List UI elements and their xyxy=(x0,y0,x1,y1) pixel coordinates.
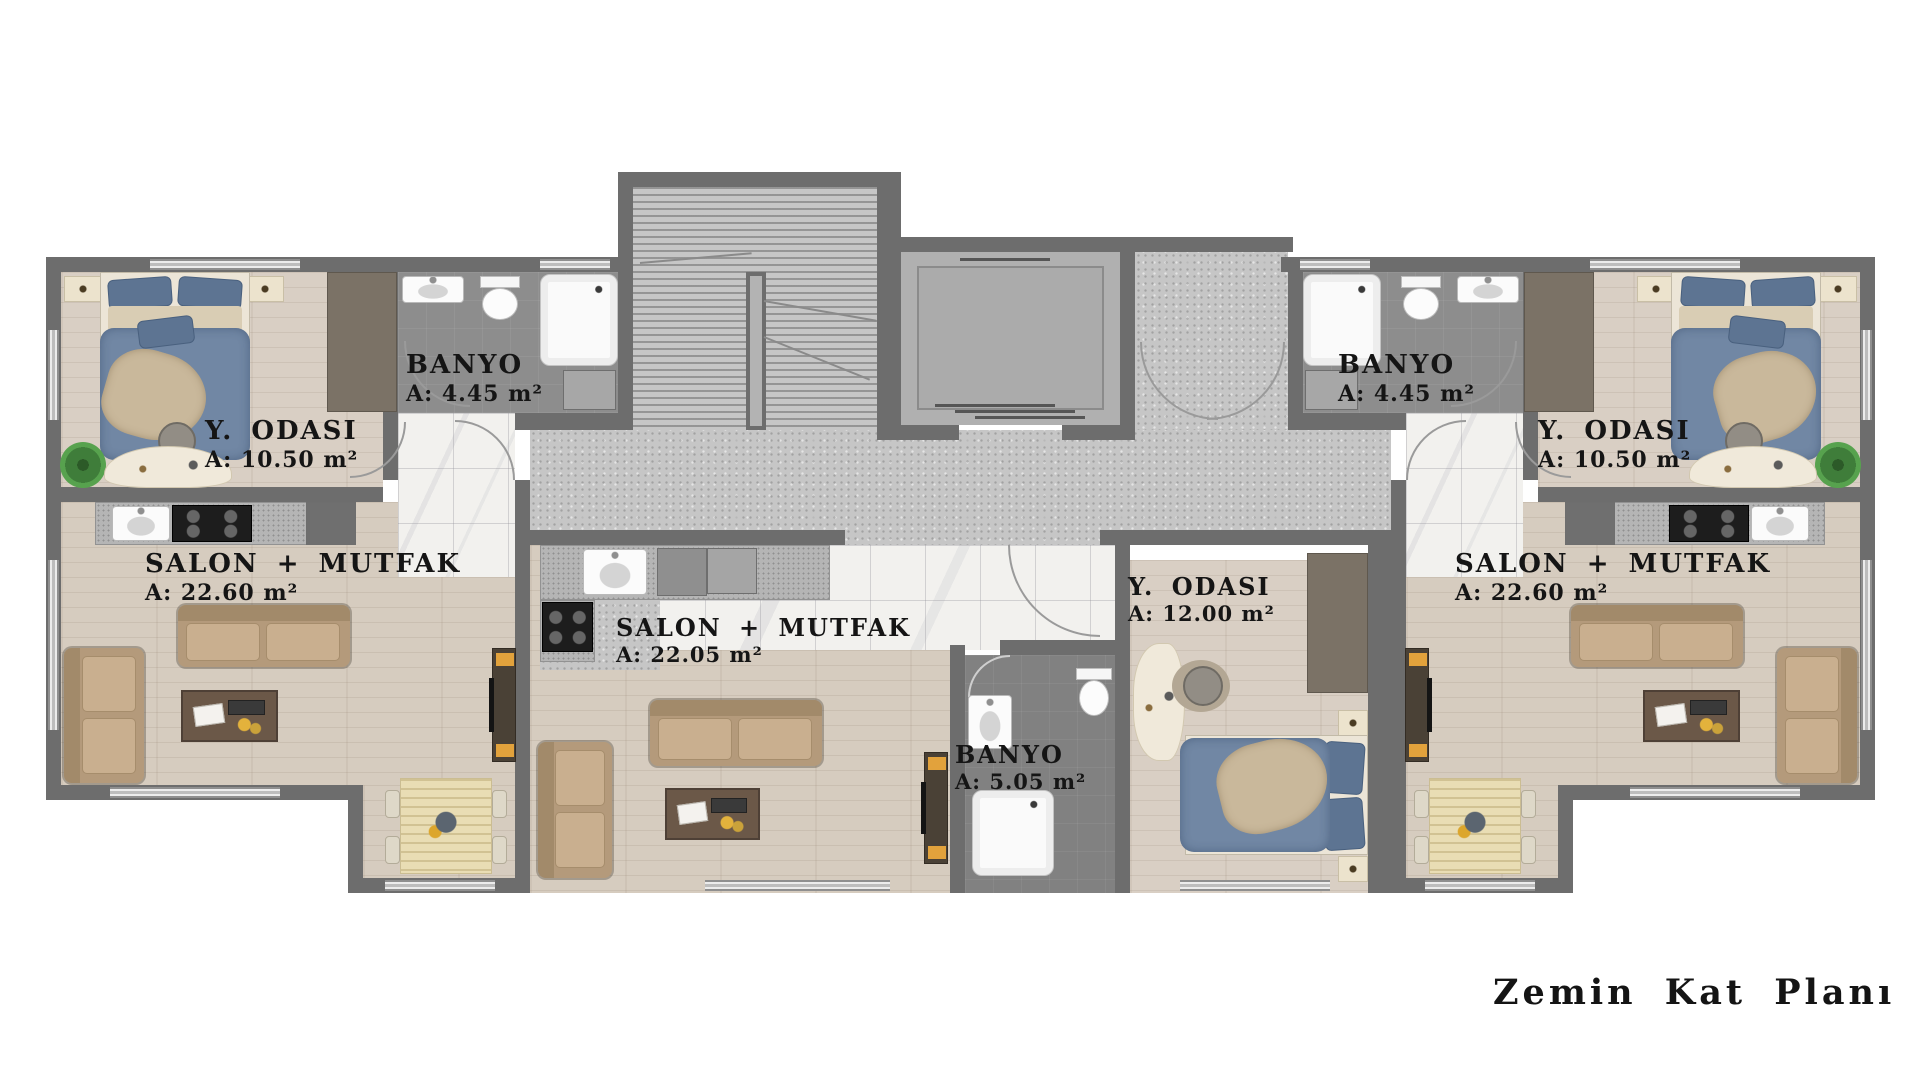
elevator-door-line xyxy=(955,410,1075,413)
window xyxy=(385,880,495,891)
toilet-tank xyxy=(1076,668,1112,680)
wall-stair-tower xyxy=(618,172,901,187)
wardrobe xyxy=(1524,272,1594,412)
armchair-cushion xyxy=(1785,656,1839,712)
elevator-mech-line xyxy=(960,258,1050,261)
tv-screen xyxy=(1427,678,1432,732)
wall xyxy=(1558,785,1573,893)
dining-chair xyxy=(385,790,400,818)
room-label-left-salon: SALON + MUTFAK A: 22.60 m² xyxy=(145,551,461,605)
wall xyxy=(1368,545,1406,893)
room-label-middle-salon: SALON + MUTFAK A: 22.05 m² xyxy=(616,615,911,666)
window xyxy=(1861,330,1872,420)
coffee-table-tray xyxy=(1690,700,1727,715)
plant xyxy=(1815,442,1861,488)
coffee-table-tray xyxy=(711,798,748,813)
sofa-back xyxy=(1571,605,1743,621)
wall-elevator xyxy=(901,425,959,440)
elevator-cab-inner xyxy=(917,266,1104,410)
room-area: A: 12.00 m² xyxy=(1128,603,1275,625)
refrigerator xyxy=(707,548,757,594)
nightstand xyxy=(246,276,284,302)
room-area: A: 10.50 m² xyxy=(205,449,358,472)
wall xyxy=(1288,413,1406,430)
room-area: A: 10.50 m² xyxy=(1538,449,1691,472)
coffee-table-tray xyxy=(228,700,265,715)
armchair-cushion xyxy=(555,812,605,868)
room-name: Y. ODASI xyxy=(1128,574,1275,599)
wall xyxy=(348,785,363,893)
tv-console xyxy=(492,648,516,762)
refrigerator xyxy=(1565,502,1615,545)
wall-stair-tower xyxy=(877,172,901,440)
armchair-cushion xyxy=(1785,718,1839,774)
nightstand xyxy=(1637,276,1675,302)
toilet-tank xyxy=(1401,276,1441,288)
dining-table xyxy=(1429,778,1521,874)
sofa-cushion xyxy=(658,718,732,760)
armchair xyxy=(538,742,612,878)
armchair xyxy=(64,648,144,783)
floor-plan-canvas: Y. ODASI A: 10.50 m² BANYO A: 4.45 m² SA… xyxy=(0,0,1920,1080)
window xyxy=(1861,560,1872,730)
tv-screen xyxy=(921,782,926,835)
shower-tray xyxy=(972,790,1054,876)
toilet-bowl xyxy=(1079,680,1109,716)
dining-chair xyxy=(1414,836,1429,864)
room-label-middle-bathroom: BANYO A: 5.05 m² xyxy=(955,742,1086,793)
wall xyxy=(515,480,530,893)
coffee-table-book xyxy=(677,801,709,825)
wall-elevator xyxy=(1062,425,1135,440)
sofa-back xyxy=(650,700,822,716)
coffee-table xyxy=(1643,690,1740,742)
bathroom-sink xyxy=(1457,276,1519,303)
coffee-table-book xyxy=(193,703,225,727)
window xyxy=(705,880,890,891)
sofa-cushion xyxy=(1579,623,1653,661)
plan-title: Zemin Kat Planı xyxy=(1493,972,1895,1013)
window xyxy=(48,330,59,420)
wardrobe xyxy=(1307,553,1368,693)
nightstand xyxy=(1338,856,1368,882)
armchair-back xyxy=(538,742,554,878)
room-name: BANYO xyxy=(406,352,543,379)
armchair-back xyxy=(64,648,80,783)
wall xyxy=(1281,257,1875,272)
room-name: SALON + MUTFAK xyxy=(1455,551,1771,578)
stove xyxy=(542,602,593,652)
sofa-cushion xyxy=(738,718,812,760)
vanity-chair xyxy=(1183,666,1223,706)
armchair-cushion xyxy=(82,656,136,712)
armchair-cushion xyxy=(82,718,136,774)
wall xyxy=(1538,487,1860,502)
armchair-back xyxy=(1841,648,1857,783)
dining-chair xyxy=(385,836,400,864)
dining-chair xyxy=(1414,790,1429,818)
window xyxy=(540,259,610,270)
wall xyxy=(1135,237,1293,252)
tv-console xyxy=(924,752,948,864)
room-area: A: 22.60 m² xyxy=(145,582,461,605)
elevator-door-line xyxy=(935,404,1055,407)
toilet-tank xyxy=(480,276,520,288)
sofa xyxy=(650,700,822,766)
room-name: Y. ODASI xyxy=(205,418,358,445)
nightstand xyxy=(1338,710,1368,736)
plant xyxy=(60,442,106,488)
tv-console-accent xyxy=(1409,744,1427,757)
room-name: BANYO xyxy=(955,742,1086,767)
wall-corridor xyxy=(530,530,845,545)
window xyxy=(1590,259,1740,270)
toilet-bowl xyxy=(482,288,518,320)
toilet-bowl xyxy=(1403,288,1439,320)
room-name: SALON + MUTFAK xyxy=(145,551,461,578)
wall xyxy=(1288,257,1303,430)
armchair-cushion xyxy=(555,750,605,806)
room-name: SALON + MUTFAK xyxy=(616,615,911,640)
kitchen-sink xyxy=(112,506,170,541)
room-area: A: 4.45 m² xyxy=(1338,383,1475,406)
sofa xyxy=(178,605,350,667)
tv-console-accent xyxy=(928,757,946,770)
coffee-table xyxy=(181,690,278,742)
sofa-cushion xyxy=(186,623,260,661)
tv-console xyxy=(1405,648,1429,762)
bathroom-sink xyxy=(402,276,464,303)
room-label-left-bathroom: BANYO A: 4.45 m² xyxy=(406,352,543,406)
elevator-door-line xyxy=(975,416,1085,419)
room-area: A: 4.45 m² xyxy=(406,383,543,406)
stair-divider-inner xyxy=(750,276,762,426)
window xyxy=(1630,787,1800,798)
wall-corridor xyxy=(1100,530,1391,545)
kitchen-cabinet xyxy=(657,548,707,596)
sofa-cushion xyxy=(1659,623,1733,661)
window xyxy=(1425,880,1535,891)
bathroom-cabinet xyxy=(563,370,616,410)
room-label-middle-bedroom: Y. ODASI A: 12.00 m² xyxy=(1128,574,1275,625)
nightstand xyxy=(64,276,102,302)
wall xyxy=(1000,640,1115,655)
kitchen-sink xyxy=(583,549,647,595)
room-label-right-bedroom: Y. ODASI A: 10.50 m² xyxy=(1538,418,1691,472)
window xyxy=(48,560,59,730)
sofa-back xyxy=(178,605,350,621)
wall xyxy=(515,413,633,430)
wall-elevator xyxy=(1120,237,1135,440)
wall xyxy=(61,487,383,502)
room-label-right-salon: SALON + MUTFAK A: 22.60 m² xyxy=(1455,551,1771,605)
room-area: A: 22.60 m² xyxy=(1455,582,1771,605)
coffee-table-book xyxy=(1655,703,1687,727)
armchair xyxy=(1777,648,1857,783)
shower-tray xyxy=(540,274,618,366)
room-label-right-bathroom: BANYO A: 4.45 m² xyxy=(1338,352,1475,406)
dining-chair xyxy=(1521,790,1536,818)
wall-stair-tower xyxy=(618,172,633,430)
tv-console-accent xyxy=(1409,653,1427,666)
window xyxy=(1180,880,1330,891)
dining-chair xyxy=(1521,836,1536,864)
tv-console-accent xyxy=(928,846,946,859)
dining-table xyxy=(400,778,492,874)
coffee-table xyxy=(665,788,760,840)
sofa xyxy=(1571,605,1743,667)
wardrobe xyxy=(327,272,397,412)
room-label-left-bedroom: Y. ODASI A: 10.50 m² xyxy=(205,418,358,472)
tv-console-accent xyxy=(496,744,514,757)
refrigerator xyxy=(306,502,356,545)
wall xyxy=(1391,480,1406,545)
stove xyxy=(1669,505,1749,542)
room-name: Y. ODASI xyxy=(1538,418,1691,445)
tv-console-accent xyxy=(496,653,514,666)
window xyxy=(1300,259,1370,270)
window xyxy=(150,259,300,270)
sofa-cushion xyxy=(266,623,340,661)
window xyxy=(110,787,280,798)
room-area: A: 22.05 m² xyxy=(616,644,911,666)
kitchen-sink xyxy=(1751,506,1809,541)
room-area: A: 5.05 m² xyxy=(955,771,1086,793)
dining-chair xyxy=(492,836,507,864)
tv-screen xyxy=(489,678,494,732)
corridor-floor xyxy=(530,430,1391,545)
nightstand xyxy=(1819,276,1857,302)
dining-chair xyxy=(492,790,507,818)
stove xyxy=(172,505,252,542)
room-name: BANYO xyxy=(1338,352,1475,379)
wall-elevator xyxy=(877,237,1135,252)
